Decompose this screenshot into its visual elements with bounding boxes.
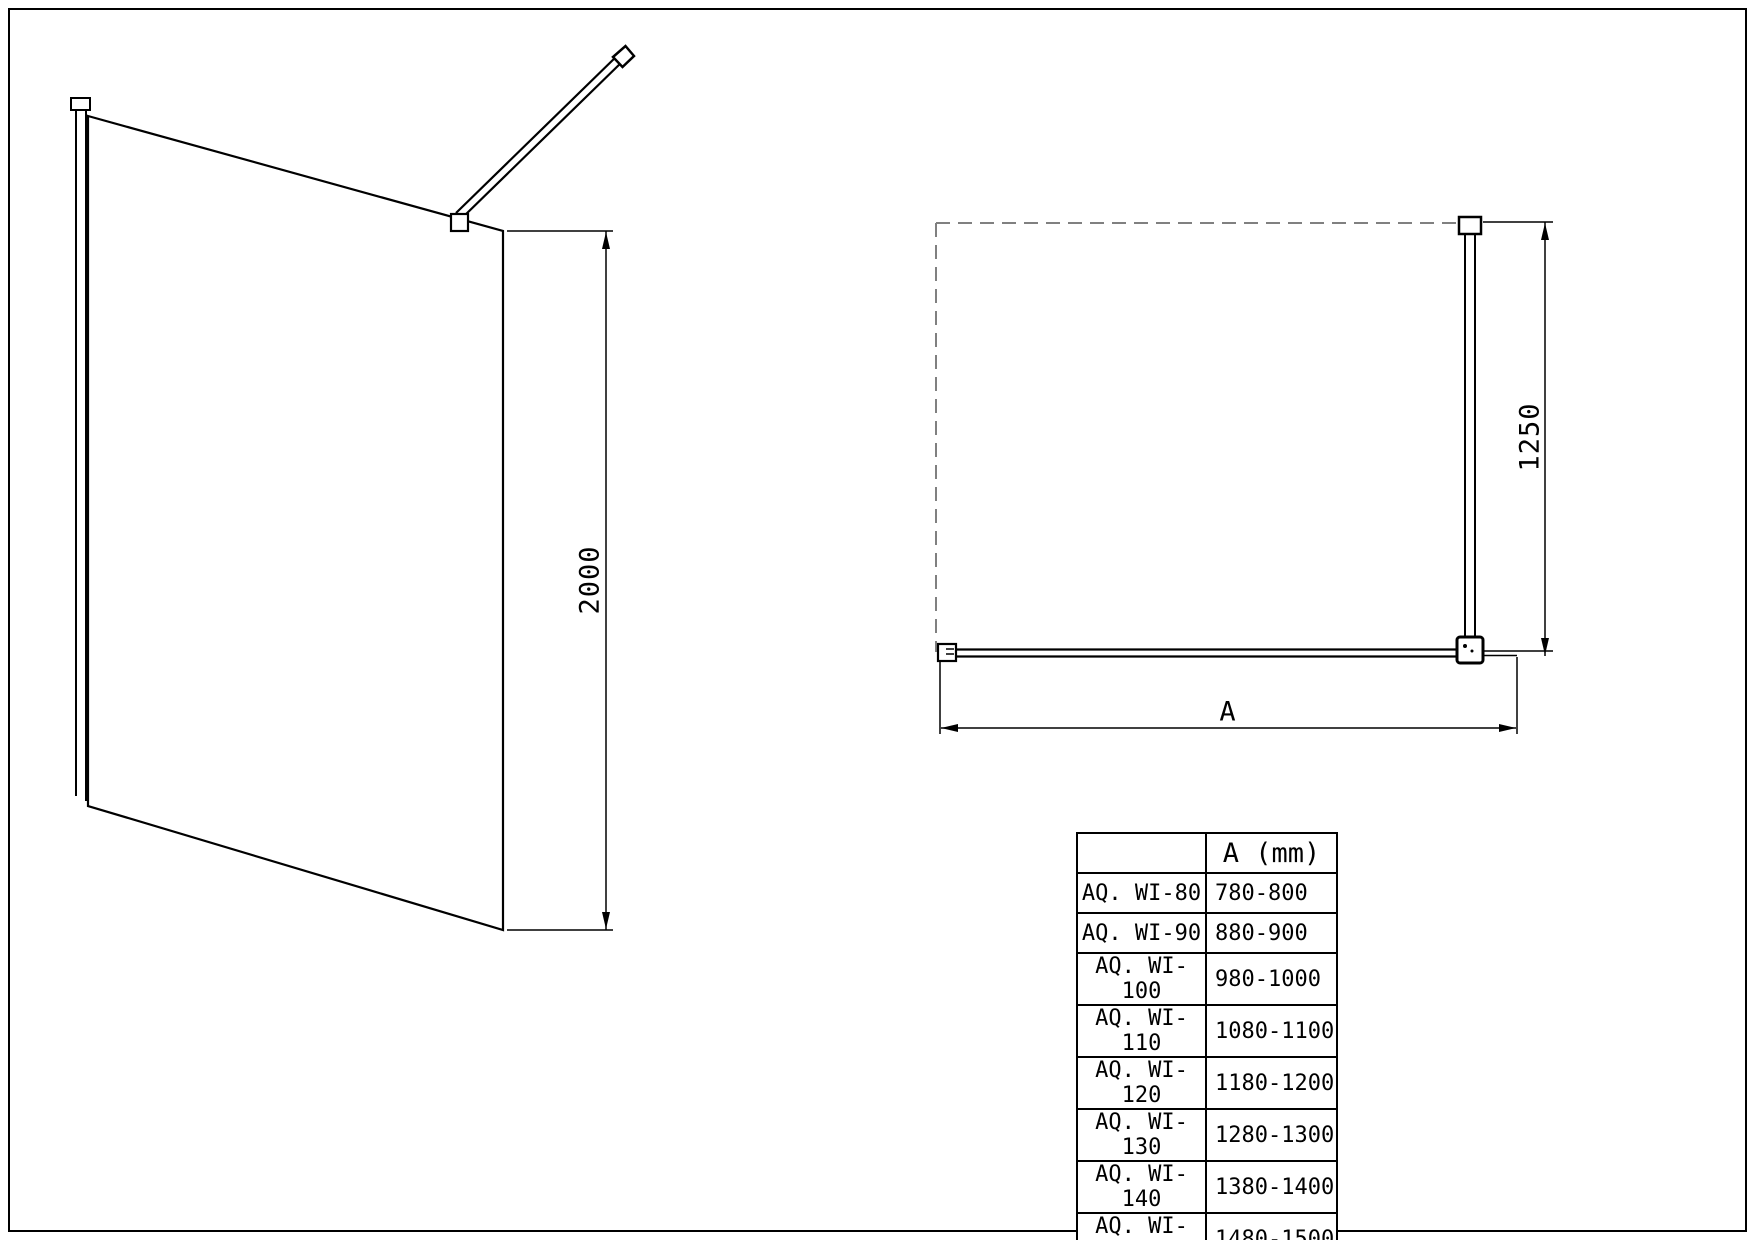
- side-view: [71, 46, 634, 930]
- size-table-header-row: A (mm): [1077, 833, 1337, 873]
- glass-panel-outline: [88, 116, 503, 930]
- support-bar: [456, 46, 634, 219]
- range-cell: 1480-1500: [1206, 1213, 1337, 1240]
- support-bar-end-cap: [613, 46, 634, 67]
- table-row: AQ. WI-150 1480-1500: [1077, 1213, 1337, 1240]
- model-cell: AQ. WI-140: [1077, 1161, 1206, 1213]
- range-cell: 980-1000: [1206, 953, 1337, 1005]
- technical-drawing: [0, 0, 1755, 1240]
- dimension-label-1250: 1250: [1515, 402, 1546, 471]
- table-row: AQ. WI-80 780-800: [1077, 873, 1337, 913]
- model-cell: AQ. WI-90: [1077, 913, 1206, 953]
- model-cell: AQ. WI-130: [1077, 1109, 1206, 1161]
- range-cell: 880-900: [1206, 913, 1337, 953]
- range-cell: 1180-1200: [1206, 1057, 1337, 1109]
- model-cell: AQ. WI-120: [1077, 1057, 1206, 1109]
- shower-area-outline: [936, 223, 1458, 652]
- table-row: AQ. WI-100 980-1000: [1077, 953, 1337, 1005]
- support-bar-wall-bracket: [1459, 217, 1481, 234]
- size-table-header-amm: A (mm): [1206, 833, 1337, 873]
- size-table-header-model: [1077, 833, 1206, 873]
- dimension-label-a: A: [1219, 697, 1236, 728]
- arrowhead-left: [941, 724, 958, 732]
- arrowhead-down: [602, 912, 610, 929]
- table-row: AQ. WI-130 1280-1300: [1077, 1109, 1337, 1161]
- arrowhead-up: [602, 232, 610, 249]
- model-cell: AQ. WI-150: [1077, 1213, 1206, 1240]
- arrowhead-down: [1541, 638, 1549, 655]
- drawing-sheet: 2000 1250 A A (mm) AQ. WI-80 780-800 AQ.…: [0, 0, 1755, 1240]
- range-cell: 1380-1400: [1206, 1161, 1337, 1213]
- sheet-border: [9, 9, 1746, 1231]
- model-cell: AQ. WI-80: [1077, 873, 1206, 913]
- support-bar-top: [1465, 232, 1475, 640]
- top-view: [936, 217, 1553, 734]
- wall-profile-bracket-top: [938, 644, 956, 661]
- range-cell: 1280-1300: [1206, 1109, 1337, 1161]
- arrowhead-up: [1541, 223, 1549, 240]
- model-cell: AQ. WI-100: [1077, 953, 1206, 1005]
- arrowhead-right: [1499, 724, 1516, 732]
- table-row: AQ. WI-90 880-900: [1077, 913, 1337, 953]
- table-row: AQ. WI-120 1180-1200: [1077, 1057, 1337, 1109]
- table-row: AQ. WI-110 1080-1100: [1077, 1005, 1337, 1057]
- model-cell: AQ. WI-110: [1077, 1005, 1206, 1057]
- range-cell: 1080-1100: [1206, 1005, 1337, 1057]
- glass-clamp: [1457, 637, 1483, 663]
- dimension-label-2000: 2000: [575, 545, 606, 614]
- table-row: AQ. WI-140 1380-1400: [1077, 1161, 1337, 1213]
- size-table: A (mm) AQ. WI-80 780-800 AQ. WI-90 880-9…: [1076, 832, 1338, 1240]
- wall-profile-cap: [71, 98, 90, 110]
- range-cell: 780-800: [1206, 873, 1337, 913]
- support-bar-bracket: [451, 214, 468, 231]
